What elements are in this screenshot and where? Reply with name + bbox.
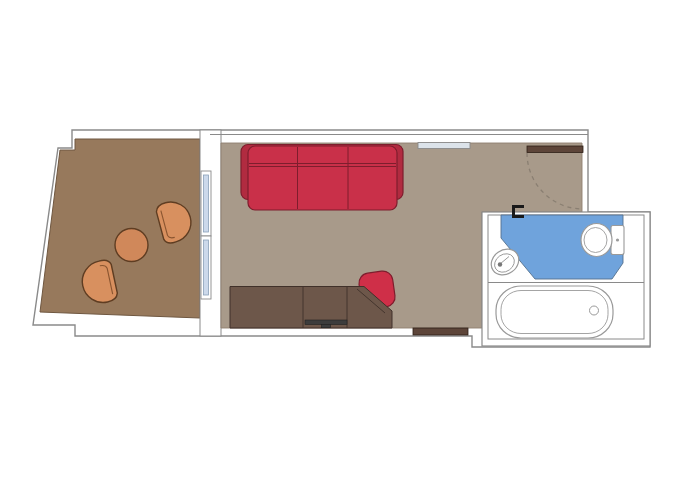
glass-pane (204, 175, 209, 232)
bathroom (482, 207, 650, 347)
bathtub-drain (590, 306, 599, 315)
toilet-flush-button (616, 238, 619, 241)
glass-pane (204, 240, 209, 295)
wall-shelf (418, 143, 470, 149)
sliding-glass-door (201, 171, 211, 299)
threshold-cabinet (413, 328, 468, 335)
sofa-cushions (248, 146, 397, 210)
entrance-door (527, 146, 583, 153)
washbasin-faucet (498, 262, 502, 266)
sofa (241, 145, 403, 211)
bathtub (496, 286, 613, 338)
toilet (581, 224, 624, 257)
floor-plan (0, 0, 680, 491)
balcony-table (115, 229, 148, 262)
